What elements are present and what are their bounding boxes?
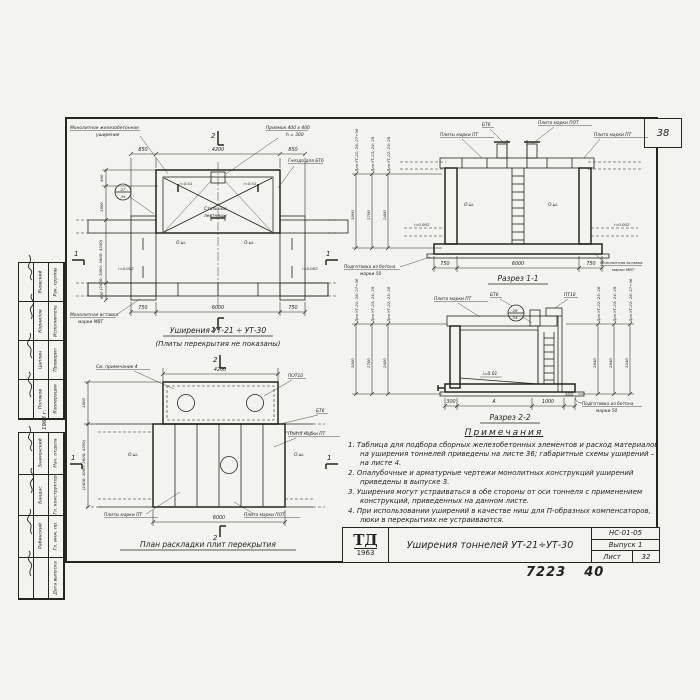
svg-text:750: 750 <box>138 305 147 311</box>
svg-text:БТ6: БТ6 <box>482 122 491 128</box>
svg-text:(2400; 3000; 3600; 4200): (2400; 3000; 3600; 4200) <box>81 439 86 490</box>
inventory-stamp: 722340 <box>526 565 622 580</box>
svg-text:i=0.002: i=0.002 <box>302 266 318 271</box>
sheet-number-row: Лист 32 <box>592 551 659 562</box>
svg-text:Для УТ-21; 26; 27÷30: Для УТ-21; 26; 27÷30 <box>628 278 633 323</box>
svg-text:БТ6: БТ6 <box>316 408 325 414</box>
svg-text:БТ6: БТ6 <box>490 292 499 298</box>
svg-text:1800: 1800 <box>81 398 86 408</box>
svg-text:Плита марки ПОТ: Плита марки ПОТ <box>538 120 579 126</box>
svg-text:Плита марки ПТ: Плита марки ПТ <box>594 132 632 138</box>
section-1-1-drawing: Для УТ-21; 26; 27÷30 Для УТ-23; 24; 29 Д… <box>342 116 660 286</box>
svg-text:Для УТ-23; 24; 29: Для УТ-23; 24; 29 <box>370 286 375 323</box>
svg-text:850: 850 <box>138 147 147 153</box>
plan-top-geometry <box>76 162 348 306</box>
svg-text:Монолитная вставка: Монолитная вставка <box>600 260 643 265</box>
margin-name: Бандас <box>34 475 49 517</box>
svg-text:850: 850 <box>288 147 297 153</box>
drawing-sheet: 38 <box>0 0 700 700</box>
svg-text:марки МВТ: марки МВТ <box>78 319 103 325</box>
margin-signature-table-2: Знаменский Нач. отдела Бандас Гл. констр… <box>18 432 65 600</box>
margin-signature-table-1: Яновский Рук. группы Корнилов Исполнител… <box>18 262 65 420</box>
margin-name: Знаменский <box>34 433 49 475</box>
svg-text:4200: 4200 <box>212 147 224 153</box>
svg-text:Монолитная вставка: Монолитная вставка <box>70 312 118 318</box>
sheet-title: Уширения тоннелей УТ-21÷УТ-30 <box>389 528 591 562</box>
svg-text:i=0.01: i=0.01 <box>179 181 192 186</box>
svg-text:марки МВТ: марки МВТ <box>612 267 635 272</box>
svg-text:2400: 2400 <box>382 358 387 368</box>
svg-text:См. примечание 4: См. примечание 4 <box>96 364 138 370</box>
svg-text:6000: 6000 <box>512 261 524 267</box>
svg-text:ПОТ10: ПОТ10 <box>288 373 303 379</box>
margin-role: Рук. группы <box>49 263 64 302</box>
svg-text:План раскладки плит перекры: План раскладки плит перекрытия <box>140 540 276 549</box>
signature-mark <box>19 380 34 419</box>
svg-text:2640: 2640 <box>592 358 597 368</box>
section2-dim-columns-right: Для УТ-22; 25; 28 Для УТ-23; 24; 29 Для … <box>566 278 634 396</box>
plan-bottom-labels: См. примечание 4 ПОТ10 БТ6 Плита марки П… <box>96 364 340 518</box>
svg-text:3000: 3000 <box>350 210 355 220</box>
svg-text:2: 2 <box>211 132 216 140</box>
svg-text:Для УТ-22; 25; 28: Для УТ-22; 25; 28 <box>596 286 601 323</box>
plan-bottom-dimensions: 4200 6000 1800 (2400; 3000; 3600; 4200) <box>81 367 287 526</box>
svg-text:Для УТ-22; 25; 28: Для УТ-22; 25; 28 <box>386 286 391 323</box>
svg-text:Подготовка из бетона: Подготовка из бетона <box>582 401 634 407</box>
svg-text:2700: 2700 <box>366 210 371 220</box>
svg-text:Для УТ-21; 26; 27÷30: Для УТ-21; 26; 27÷30 <box>354 128 359 173</box>
svg-text:4200: 4200 <box>214 367 226 373</box>
logo-year: 1963 <box>354 548 378 557</box>
margin-name <box>34 558 49 600</box>
stamp-number-left: 7223 <box>526 565 566 580</box>
svg-text:1: 1 <box>327 454 331 462</box>
svg-text:27: 27 <box>121 187 126 192</box>
svg-text:Приямок 400 х 400: Приямок 400 х 400 <box>266 125 310 131</box>
title-block: ТД 1963 Уширения тоннелей УТ-21÷УТ-30 НС… <box>342 527 660 563</box>
margin-role: Гл. инж. пр. <box>49 516 64 558</box>
svg-text:3240: 3240 <box>624 358 629 368</box>
stamp-number-right: 40 <box>584 565 604 580</box>
svg-text:марки 50: марки 50 <box>360 271 381 277</box>
section2-title: Разрез 2-2 <box>480 413 540 423</box>
svg-text:ПТ10: ПТ10 <box>564 292 576 298</box>
svg-text:3000: 3000 <box>350 358 355 368</box>
svg-text:28: 28 <box>513 308 518 313</box>
svg-text:Уширения УТ-21 ÷ УТ-30: Уширения УТ-21 ÷ УТ-30 <box>170 326 266 335</box>
svg-text:марки 50: марки 50 <box>596 408 617 414</box>
svg-text:уширение: уширение <box>95 133 120 138</box>
svg-text:О.ш.: О.ш. <box>244 240 254 246</box>
svg-text:Плиты марки ПТ: Плиты марки ПТ <box>440 132 478 138</box>
svg-text:2700: 2700 <box>366 358 371 368</box>
section2-bottom-dims: 300 А 1000 300 <box>443 392 577 410</box>
title-block-codes: НС-01-05 Выпуск 1 Лист 32 <box>591 528 659 562</box>
margin-role: Кооперация <box>49 380 64 419</box>
svg-text:1: 1 <box>326 250 330 258</box>
svg-text:Плиты марки ПТ: Плиты марки ПТ <box>104 512 142 518</box>
svg-text:Плита марки ПОТ: Плита марки ПОТ <box>244 512 285 518</box>
section2-geometry <box>438 305 584 396</box>
svg-text:750: 750 <box>288 305 297 311</box>
svg-text:Подготовка из бетона: Подготовка из бетона <box>344 264 396 270</box>
note-item-4: 4. При использовании уширений в качестве… <box>348 507 660 525</box>
margin-role: Гл. конструктор <box>49 475 64 517</box>
plan-top-drawing: 850 4200 850 750 6000 750 400 1800 (2400… <box>68 118 343 348</box>
margin-name: Корнилов <box>34 302 49 341</box>
svg-text:(2400; 3000; 3600; 4200): (2400; 3000; 3600; 4200) <box>98 239 103 290</box>
margin-role: Проверил <box>49 341 64 380</box>
note-item-3: 3. Уширения могут устраиваться в обе сто… <box>348 488 660 506</box>
svg-text:2400: 2400 <box>382 210 387 220</box>
svg-text:1: 1 <box>71 454 75 462</box>
organization-logo: ТД 1963 <box>343 528 389 562</box>
svg-text:34: 34 <box>121 194 126 199</box>
sheet-number: 32 <box>633 551 659 562</box>
svg-text:34: 34 <box>513 315 518 320</box>
svg-text:h = 300: h = 300 <box>286 132 304 138</box>
svg-text:750: 750 <box>440 261 449 267</box>
svg-text:Плита марки ПТ: Плита марки ПТ <box>288 431 326 437</box>
svg-text:300: 300 <box>564 392 573 398</box>
svg-text:лестницы: лестницы <box>203 214 227 219</box>
margin-role: Исполнитель <box>49 302 64 341</box>
svg-text:2940: 2940 <box>608 358 613 368</box>
svg-text:400: 400 <box>99 174 104 182</box>
svg-text:Для УТ-23; 24; 29: Для УТ-23; 24; 29 <box>612 286 617 323</box>
svg-text:i=0.002: i=0.002 <box>118 266 134 271</box>
plan-bottom-drawing: 2 2 1 1 <box>68 352 343 552</box>
svg-text:6000: 6000 <box>212 305 224 311</box>
svg-text:6000: 6000 <box>213 515 225 521</box>
margin-role: Дата выпуска <box>49 558 64 600</box>
logo-abbr: ТД <box>353 533 378 548</box>
svg-text:1000: 1000 <box>542 399 554 405</box>
svg-text:А: А <box>491 399 495 405</box>
section1-dim-columns: Для УТ-21; 26; 27÷30 Для УТ-23; 24; 29 Д… <box>350 128 442 250</box>
svg-text:i=0.002: i=0.002 <box>414 222 430 227</box>
svg-text:Плита марки ПТ: Плита марки ПТ <box>434 296 472 302</box>
svg-text:300: 300 <box>446 399 455 405</box>
svg-text:О.ш.: О.ш. <box>128 452 138 458</box>
margin-role: Нач. отдела <box>49 433 64 475</box>
section1-geometry <box>400 140 642 258</box>
svg-text:Разрез 2-2: Разрез 2-2 <box>489 413 530 422</box>
svg-text:Разрез 1-1: Разрез 1-1 <box>497 274 538 283</box>
svg-text:Стальные: Стальные <box>204 206 227 212</box>
note-item-2: 2. Опалубочные и арматурные чертежи моно… <box>348 469 660 487</box>
svg-text:1: 1 <box>74 250 78 258</box>
document-code: НС-01-05 <box>592 528 659 540</box>
sheet-label: Лист <box>592 551 633 562</box>
plan-top-title: Уширения УТ-21 ÷ УТ-30 (Плиты перекрытия… <box>155 326 280 348</box>
svg-text:О.ш.: О.ш. <box>294 452 304 458</box>
margin-year: 1963 г. <box>42 410 48 430</box>
margin-name: Рабинский <box>34 516 49 558</box>
plan-top-labels: Монолитное железобетонное уширение Приям… <box>70 125 324 325</box>
svg-text:i=0.01: i=0.01 <box>483 371 498 377</box>
svg-text:О.ш.: О.ш. <box>548 202 558 208</box>
svg-text:i=0.002: i=0.002 <box>614 222 630 227</box>
svg-text:i=0.01: i=0.01 <box>243 181 256 186</box>
svg-text:Для УТ-23; 24; 29: Для УТ-23; 24; 29 <box>370 136 375 173</box>
svg-text:Гнездо для БТ6: Гнездо для БТ6 <box>288 158 324 164</box>
issue-number: Выпуск 1 <box>592 540 659 552</box>
svg-text:1800: 1800 <box>99 202 104 212</box>
svg-text:600: 600 <box>99 291 104 299</box>
section-2-2-drawing: Для УТ-21; 26; 27÷30 Для УТ-23; 24; 29 Д… <box>342 286 660 426</box>
section2-dim-columns-left: Для УТ-21; 26; 27÷30 Для УТ-23; 24; 29 Д… <box>350 278 447 396</box>
svg-text:2: 2 <box>213 356 218 364</box>
note-item-1: 1. Таблица для подбора сборных железобет… <box>348 441 660 468</box>
svg-text:Для УТ-22; 25; 28: Для УТ-22; 25; 28 <box>386 136 391 173</box>
svg-text:Монолитное железобетонное: Монолитное железобетонное <box>70 125 139 131</box>
plan-bottom-title: План раскладки плит перекрытия <box>120 540 296 550</box>
plan-bottom-geometry <box>86 382 325 507</box>
svg-text:О.ш.: О.ш. <box>176 240 186 246</box>
svg-text:Для УТ-21; 26; 27÷30: Для УТ-21; 26; 27÷30 <box>354 278 359 323</box>
svg-text:О.ш.: О.ш. <box>464 202 474 208</box>
plan-top-dimensions: 850 4200 850 750 6000 750 400 1800 (2400… <box>98 147 307 316</box>
svg-text:750: 750 <box>586 261 595 267</box>
section1-title: Разрез 1-1 <box>488 274 548 284</box>
notes-block: Примечания 1. Таблица для подбора сборны… <box>348 428 660 526</box>
margin-name: Яновский <box>34 263 49 302</box>
margin-name: Цаплин <box>34 341 49 380</box>
svg-text:(Плиты перекрытия не показаны): (Плиты перекрытия не показаны) <box>155 340 280 348</box>
signature-mark <box>19 558 34 600</box>
notes-title: Примечания <box>348 428 660 438</box>
